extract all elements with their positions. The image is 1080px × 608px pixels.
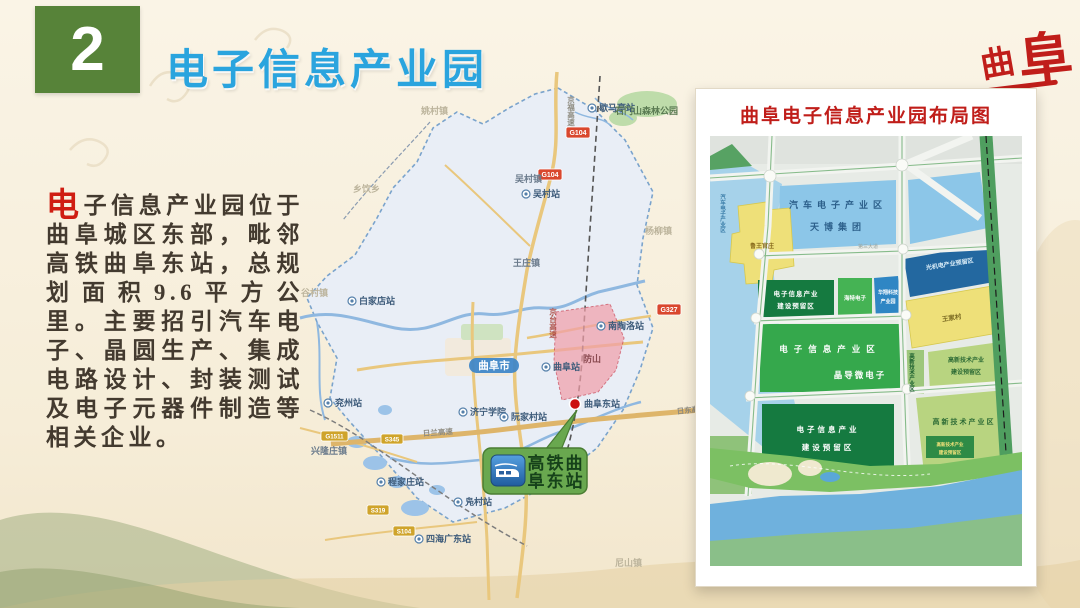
einfo-reserve-block [758, 280, 834, 317]
road-badge-g1511: G1511 [321, 431, 348, 441]
label-nishan: 尼山镇 [615, 557, 642, 568]
svg-text:曲阜市: 曲阜市 [478, 359, 510, 372]
label-hitech-reserve-2: 建设预留区 [951, 368, 981, 376]
station-guangche: 四海广东站 [426, 533, 471, 544]
station-ruanjiacun: 阮家村站 [511, 411, 547, 422]
station-yanzhou: 兖州站 [335, 397, 362, 408]
station-qufu: 曲阜站 [553, 361, 580, 372]
section-number: 2 [70, 19, 104, 81]
layout-panel-title: 曲阜电子信息产业园布局图 [696, 101, 1036, 128]
label-hitech-vertical: 高新技术产业区 [908, 352, 915, 393]
label-village-west: 鲁王官庄 [750, 242, 774, 250]
label-einfo-reserve-b2: 建设预留区 [801, 442, 855, 452]
road-badge-g327: G327 [657, 304, 681, 315]
label-einfo-reserve-b1: 电子信息产业 [797, 424, 860, 434]
label-gucun: 谷村镇 [301, 287, 328, 298]
layout-panel-card: 曲阜电子信息产业园布局图 [695, 88, 1037, 587]
road-badge-s319: S319 [367, 505, 389, 515]
city-badge: 曲阜市 [469, 358, 519, 373]
label-hitech-small-2: 建设预留区 [938, 449, 962, 456]
label-einfo-reserve-1: 电子信息产业 [774, 289, 819, 298]
label-tianbo: 天博集团 [810, 221, 866, 232]
svg-text:G327: G327 [660, 307, 677, 314]
svg-text:G104: G104 [541, 172, 558, 179]
intro-body: 子信息产业园位于曲阜城区东部，毗邻高铁曲阜东站，总规划面积9.6平方公里。主要招… [46, 193, 304, 450]
svg-text:S319: S319 [371, 508, 386, 515]
station-wucun: 吴村站 [533, 188, 560, 199]
train-icon [491, 455, 525, 486]
label-auto-zone-vertical: 汽车电子产业区 [719, 193, 726, 234]
label-yangliu: 杨柳镇 [645, 225, 672, 236]
section-number-box: 2 [35, 6, 140, 93]
einfo-zone-block [760, 324, 900, 392]
park-lawn [748, 462, 792, 486]
station-qufudong: 曲阜东站 [584, 398, 620, 409]
park-lawn [798, 460, 822, 476]
intro-dropcap: 电 [46, 188, 84, 224]
label-jingdaowei: 晶导微电子 [834, 370, 887, 380]
label-auto-zone: 汽车电子产业区 [789, 199, 887, 210]
label-hitech-reserve-1: 高新技术产业 [948, 356, 984, 364]
park-pond [820, 472, 840, 482]
industrial-park-layout-map: 汽车电子产业区 天博集团 汽车电子产业区 鲁王官庄 电子信息产业 建设预留区 海… [710, 136, 1022, 566]
label-tech-park-2: 产业园 [880, 298, 895, 305]
road-label-jingfu: 京福高速 [566, 95, 575, 128]
road-badge-s104: S104 [393, 526, 415, 536]
qufu-city-map: 防山 G104 G104 G327 G1511 S345 S319 S104 曲… [295, 70, 715, 605]
label-wucunzhen: 吴村镇 [515, 173, 542, 184]
label-shimenshan: 石门山森林公园 [614, 105, 678, 116]
label-road-name: 第三大道 [858, 243, 878, 250]
station-chengjiazhuang: 程家庄站 [388, 476, 424, 487]
label-einfo-zone: 电子信息产业区 [779, 344, 881, 354]
label-xiangyin: 乡饮乡 [353, 183, 380, 194]
label-haite: 海特电子 [844, 294, 867, 302]
intro-paragraph: 电子信息产业园位于曲阜城区东部，毗邻高铁曲阜东站，总规划面积9.6平方公里。主要… [46, 191, 304, 452]
callout-line2: 阜东站 [528, 471, 585, 491]
label-hitech-small-1: 高新技术产业 [937, 441, 964, 448]
label-xinglongzhuang: 兴隆庄镇 [311, 445, 347, 456]
label-wangzhuang: 王庄镇 [513, 257, 540, 268]
green-patch [461, 324, 503, 340]
callout-line1: 高铁曲 [528, 453, 585, 473]
label-tech-park-1: 华翔科技 [878, 289, 899, 296]
station-nantaoluo: 南陶洛站 [608, 320, 644, 331]
road-label-jingtai: 京台高速 [548, 307, 557, 340]
station-fucun: 凫村站 [464, 496, 492, 507]
road-badge-s345: S345 [381, 434, 403, 444]
label-yaocun: 姚村镇 [420, 105, 448, 116]
svg-text:S345: S345 [385, 437, 400, 444]
zone-label: 防山 [583, 353, 601, 364]
label-einfo-reserve-2: 建设预留区 [776, 301, 815, 310]
auto-electronics-block [778, 180, 896, 250]
logo-char-qu: 曲 [976, 33, 1018, 87]
svg-text:G1511: G1511 [325, 434, 344, 441]
station-baijiadian: 白家店站 [359, 295, 395, 306]
qufu-east-station-marker [570, 399, 581, 410]
svg-text:G104: G104 [569, 130, 586, 137]
svg-text:S104: S104 [397, 529, 412, 536]
label-hitech-zone: 高新技术产业区 [933, 417, 996, 426]
road-badge-g104-a: G104 [566, 127, 590, 138]
